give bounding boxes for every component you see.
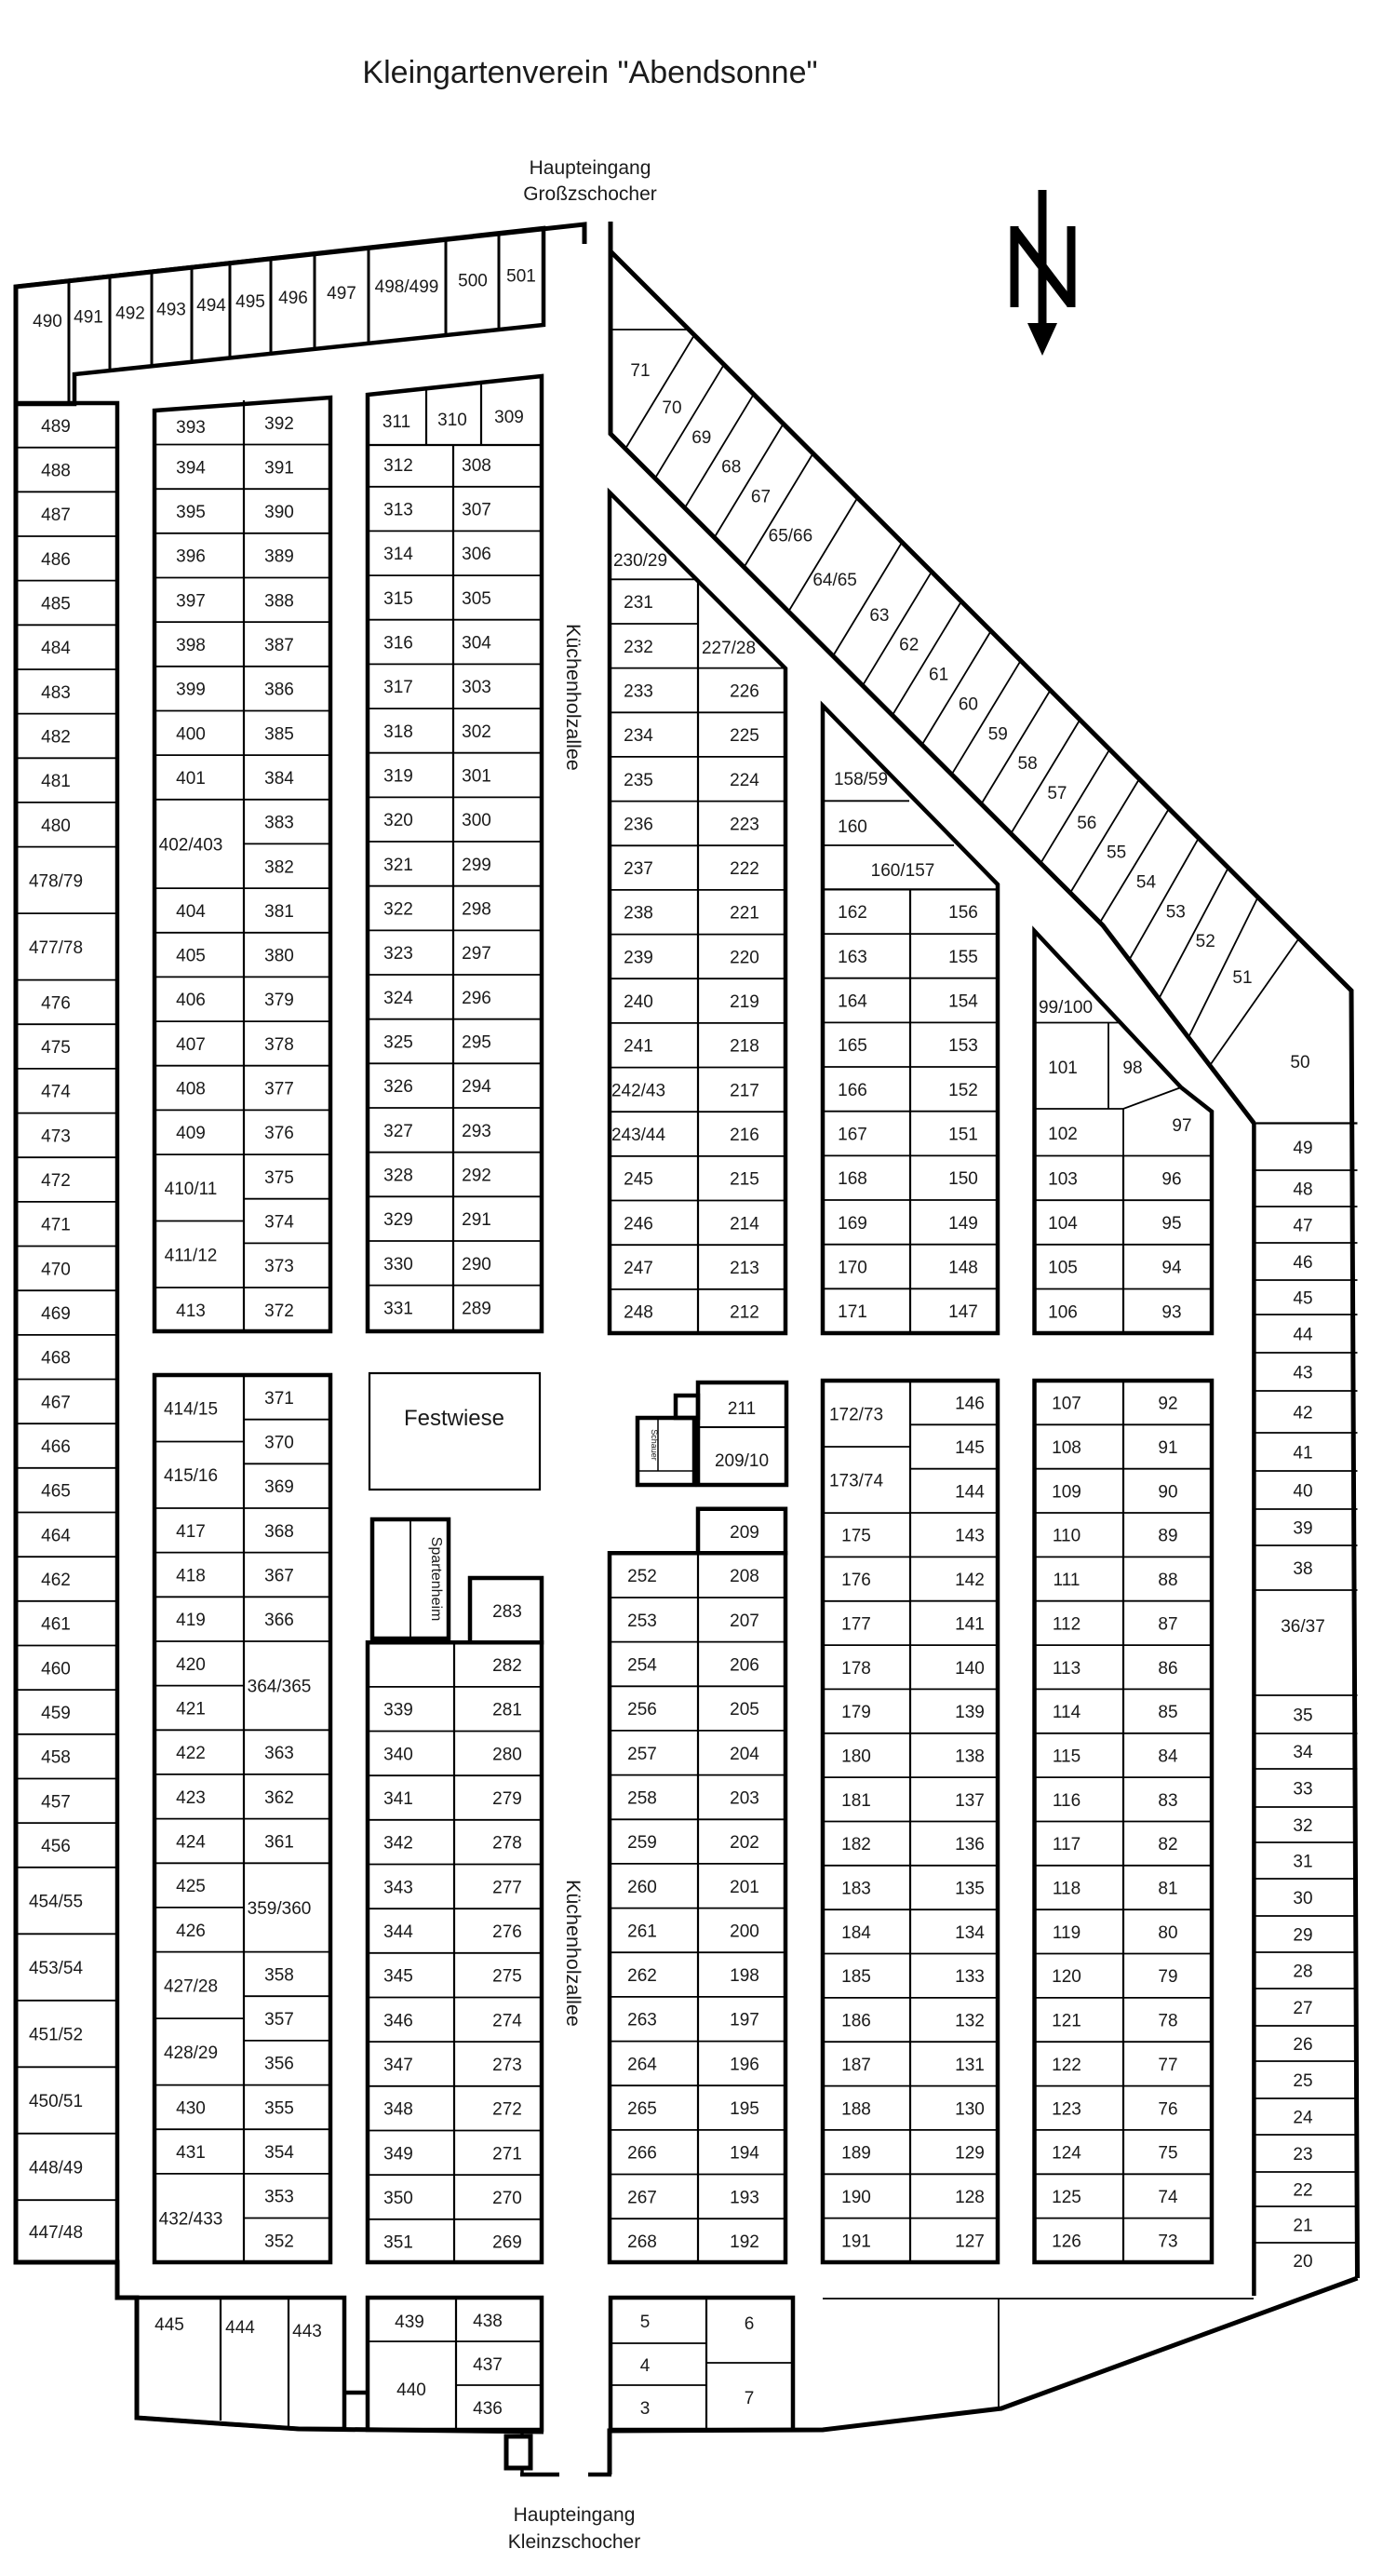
- svg-text:196: 196: [730, 2055, 759, 2074]
- svg-text:398: 398: [176, 636, 206, 655]
- svg-text:497: 497: [327, 284, 356, 303]
- svg-text:385: 385: [264, 724, 294, 744]
- svg-text:31: 31: [1293, 1853, 1312, 1872]
- svg-text:111: 111: [1054, 1571, 1081, 1590]
- svg-text:107: 107: [1052, 1395, 1081, 1414]
- svg-text:427/28: 427/28: [164, 1976, 218, 1996]
- svg-text:114: 114: [1053, 1703, 1081, 1722]
- svg-text:387: 387: [264, 636, 294, 655]
- svg-text:355: 355: [264, 2098, 294, 2118]
- svg-text:418: 418: [176, 1567, 206, 1586]
- svg-text:28: 28: [1293, 1962, 1312, 1982]
- svg-text:97: 97: [1172, 1116, 1191, 1136]
- svg-text:247: 247: [624, 1259, 653, 1278]
- svg-text:421: 421: [176, 1700, 206, 1720]
- svg-text:136: 136: [955, 1835, 985, 1854]
- svg-text:155: 155: [948, 948, 978, 967]
- svg-text:194: 194: [730, 2144, 759, 2164]
- svg-text:153: 153: [948, 1036, 978, 1056]
- svg-text:296: 296: [462, 989, 491, 1008]
- svg-text:314: 314: [383, 545, 413, 564]
- svg-text:41: 41: [1293, 1444, 1312, 1463]
- svg-text:132: 132: [955, 2012, 985, 2031]
- svg-text:58: 58: [1018, 754, 1038, 774]
- svg-text:38: 38: [1293, 1559, 1312, 1579]
- svg-text:475: 475: [41, 1038, 71, 1058]
- svg-text:168: 168: [838, 1169, 867, 1189]
- svg-text:319: 319: [383, 767, 413, 787]
- svg-text:195: 195: [730, 2099, 759, 2119]
- svg-text:177: 177: [841, 1614, 871, 1634]
- svg-text:448/49: 448/49: [29, 2159, 83, 2178]
- svg-text:347: 347: [383, 2056, 413, 2075]
- svg-text:151: 151: [948, 1126, 978, 1145]
- svg-text:104: 104: [1048, 1214, 1078, 1234]
- svg-text:272: 272: [492, 2100, 522, 2120]
- svg-text:317: 317: [383, 678, 413, 697]
- svg-text:191: 191: [841, 2232, 871, 2251]
- svg-text:468: 468: [41, 1349, 71, 1369]
- svg-text:211: 211: [728, 1399, 756, 1419]
- svg-text:469: 469: [41, 1304, 71, 1324]
- svg-text:237: 237: [624, 859, 653, 879]
- svg-text:Küchenholzallee: Küchenholzallee: [562, 1880, 584, 2027]
- svg-text:89: 89: [1158, 1527, 1177, 1546]
- svg-text:436: 436: [473, 2399, 503, 2419]
- svg-text:440: 440: [396, 2380, 426, 2400]
- svg-text:430: 430: [176, 2098, 206, 2118]
- svg-text:46: 46: [1293, 1253, 1312, 1273]
- svg-text:362: 362: [264, 1788, 294, 1808]
- svg-text:164: 164: [838, 992, 867, 1012]
- svg-text:Haupteingang: Haupteingang: [514, 2504, 636, 2526]
- svg-text:447/48: 447/48: [29, 2223, 83, 2243]
- svg-text:Schauer: Schauer: [650, 1429, 659, 1461]
- svg-text:290: 290: [462, 1255, 491, 1275]
- svg-text:498/499: 498/499: [375, 277, 439, 297]
- svg-text:20: 20: [1293, 2252, 1312, 2272]
- svg-text:7: 7: [745, 2389, 755, 2408]
- svg-text:464: 464: [41, 1526, 71, 1545]
- svg-text:220: 220: [730, 948, 759, 967]
- svg-text:473: 473: [41, 1126, 71, 1146]
- svg-text:123: 123: [1052, 2099, 1081, 2119]
- svg-text:500: 500: [458, 272, 488, 291]
- svg-text:467: 467: [41, 1393, 71, 1412]
- svg-text:259: 259: [627, 1833, 657, 1853]
- svg-text:368: 368: [264, 1522, 294, 1542]
- svg-text:118: 118: [1053, 1880, 1081, 1899]
- svg-text:223: 223: [730, 815, 759, 834]
- svg-text:180: 180: [841, 1747, 871, 1767]
- svg-text:96: 96: [1161, 1169, 1181, 1189]
- svg-text:307: 307: [462, 501, 491, 520]
- svg-text:148: 148: [948, 1259, 978, 1278]
- svg-text:459: 459: [41, 1704, 71, 1723]
- svg-text:209/10: 209/10: [715, 1451, 769, 1471]
- svg-text:84: 84: [1158, 1747, 1178, 1767]
- svg-text:74: 74: [1158, 2188, 1178, 2207]
- svg-text:142: 142: [955, 1571, 985, 1590]
- svg-text:79: 79: [1158, 1967, 1177, 1987]
- svg-text:87: 87: [1158, 1614, 1177, 1634]
- svg-text:409: 409: [176, 1124, 206, 1143]
- svg-text:348: 348: [383, 2100, 413, 2120]
- svg-text:325: 325: [383, 1033, 413, 1053]
- svg-text:109: 109: [1052, 1482, 1081, 1502]
- svg-text:22: 22: [1293, 2181, 1312, 2201]
- svg-text:207: 207: [730, 1612, 759, 1631]
- svg-text:438: 438: [473, 2312, 503, 2331]
- svg-text:150: 150: [948, 1169, 978, 1189]
- svg-text:76: 76: [1158, 2099, 1177, 2119]
- svg-text:456: 456: [41, 1837, 71, 1856]
- svg-text:116: 116: [1053, 1791, 1081, 1811]
- svg-text:57: 57: [1047, 784, 1067, 803]
- svg-text:184: 184: [841, 1923, 871, 1943]
- svg-text:39: 39: [1293, 1519, 1312, 1539]
- svg-text:213: 213: [730, 1259, 759, 1278]
- svg-text:265: 265: [627, 2099, 657, 2119]
- svg-text:125: 125: [1052, 2188, 1081, 2207]
- svg-text:24: 24: [1293, 2109, 1313, 2128]
- svg-text:351: 351: [383, 2233, 413, 2253]
- svg-text:5: 5: [640, 2313, 651, 2332]
- svg-text:147: 147: [948, 1302, 978, 1322]
- svg-text:234: 234: [624, 726, 653, 746]
- svg-text:122: 122: [1052, 2056, 1081, 2075]
- svg-text:261: 261: [627, 1922, 657, 1941]
- svg-text:254: 254: [627, 1656, 657, 1676]
- svg-text:50: 50: [1290, 1053, 1309, 1072]
- svg-text:144: 144: [955, 1482, 985, 1502]
- svg-text:77: 77: [1158, 2056, 1177, 2075]
- svg-text:190: 190: [841, 2188, 871, 2207]
- svg-text:501: 501: [506, 267, 536, 287]
- svg-text:359/360: 359/360: [248, 1899, 312, 1919]
- svg-text:90: 90: [1158, 1482, 1177, 1502]
- svg-text:70: 70: [662, 398, 681, 418]
- svg-text:23: 23: [1293, 2145, 1312, 2165]
- svg-text:413: 413: [176, 1301, 206, 1321]
- svg-text:51: 51: [1232, 968, 1252, 988]
- svg-text:120: 120: [1052, 1967, 1081, 1987]
- svg-text:143: 143: [955, 1527, 985, 1546]
- svg-text:344: 344: [383, 1922, 413, 1942]
- svg-text:34: 34: [1293, 1743, 1313, 1762]
- svg-text:282: 282: [492, 1656, 522, 1676]
- svg-text:419: 419: [176, 1611, 206, 1630]
- svg-text:291: 291: [462, 1210, 491, 1230]
- svg-text:Küchenholzallee: Küchenholzallee: [562, 624, 584, 771]
- svg-text:86: 86: [1158, 1659, 1177, 1679]
- svg-text:466: 466: [41, 1437, 71, 1457]
- svg-text:482: 482: [41, 727, 71, 747]
- svg-text:221: 221: [730, 904, 759, 924]
- svg-text:488: 488: [41, 462, 71, 481]
- svg-text:197: 197: [730, 2011, 759, 2030]
- svg-text:99/100: 99/100: [1039, 998, 1093, 1018]
- svg-text:188: 188: [841, 2099, 871, 2119]
- svg-text:212: 212: [730, 1303, 759, 1323]
- svg-text:353: 353: [264, 2188, 294, 2207]
- svg-text:43: 43: [1293, 1364, 1312, 1383]
- svg-text:36/37: 36/37: [1281, 1617, 1325, 1637]
- svg-text:26: 26: [1293, 2035, 1312, 2055]
- svg-text:226: 226: [730, 681, 759, 701]
- svg-text:322: 322: [383, 900, 413, 920]
- svg-text:356: 356: [264, 2055, 294, 2074]
- svg-text:369: 369: [264, 1477, 294, 1497]
- svg-text:183: 183: [841, 1880, 871, 1899]
- svg-text:324: 324: [383, 989, 413, 1008]
- svg-text:417: 417: [176, 1522, 206, 1542]
- svg-text:101: 101: [1048, 1059, 1078, 1078]
- svg-text:457: 457: [41, 1792, 71, 1812]
- svg-text:110: 110: [1053, 1527, 1081, 1546]
- svg-text:154: 154: [948, 992, 978, 1012]
- svg-text:486: 486: [41, 550, 71, 570]
- svg-text:117: 117: [1053, 1835, 1081, 1854]
- svg-text:397: 397: [176, 591, 206, 611]
- svg-text:411/12: 411/12: [165, 1246, 218, 1265]
- svg-text:443: 443: [292, 2322, 322, 2341]
- svg-text:60: 60: [959, 695, 978, 714]
- svg-text:483: 483: [41, 683, 71, 703]
- svg-text:126: 126: [1052, 2232, 1081, 2251]
- svg-text:Festwiese: Festwiese: [404, 1406, 504, 1431]
- svg-text:495: 495: [235, 292, 265, 312]
- svg-text:Großzschocher: Großzschocher: [523, 183, 657, 205]
- svg-text:262: 262: [627, 1966, 657, 1986]
- svg-text:201: 201: [730, 1878, 759, 1897]
- svg-text:149: 149: [948, 1214, 978, 1234]
- svg-text:364/365: 364/365: [248, 1678, 312, 1697]
- svg-text:252: 252: [627, 1567, 657, 1586]
- svg-text:133: 133: [955, 1967, 985, 1987]
- svg-text:292: 292: [462, 1167, 491, 1186]
- svg-text:281: 281: [492, 1701, 522, 1720]
- svg-text:215: 215: [730, 1170, 759, 1190]
- svg-text:129: 129: [955, 2144, 985, 2164]
- svg-text:470: 470: [41, 1260, 71, 1279]
- svg-text:49: 49: [1293, 1139, 1312, 1158]
- svg-text:98: 98: [1122, 1059, 1142, 1078]
- svg-text:63: 63: [869, 606, 889, 626]
- svg-text:239: 239: [624, 948, 653, 967]
- svg-text:203: 203: [730, 1788, 759, 1808]
- svg-text:189: 189: [841, 2144, 871, 2164]
- svg-text:376: 376: [264, 1124, 294, 1143]
- svg-text:405: 405: [176, 947, 206, 966]
- svg-text:Spartenheim: Spartenheim: [428, 1537, 444, 1622]
- svg-text:432/433: 432/433: [159, 2210, 223, 2230]
- svg-text:485: 485: [41, 595, 71, 614]
- svg-text:327: 327: [383, 1122, 413, 1141]
- svg-text:93: 93: [1161, 1302, 1181, 1322]
- svg-text:243/44: 243/44: [611, 1126, 666, 1145]
- svg-text:141: 141: [955, 1614, 985, 1634]
- svg-text:35: 35: [1293, 1706, 1312, 1726]
- svg-text:465: 465: [41, 1482, 71, 1502]
- svg-text:304: 304: [462, 634, 491, 654]
- svg-text:384: 384: [264, 769, 294, 789]
- svg-text:389: 389: [264, 547, 294, 567]
- svg-text:343: 343: [383, 1878, 413, 1897]
- svg-text:158/59: 158/59: [834, 770, 888, 789]
- svg-text:453/54: 453/54: [29, 1959, 84, 1978]
- svg-text:248: 248: [624, 1303, 653, 1323]
- svg-text:64/65: 64/65: [812, 571, 857, 590]
- svg-text:182: 182: [841, 1835, 871, 1854]
- svg-text:374: 374: [264, 1213, 294, 1233]
- svg-text:270: 270: [492, 2189, 522, 2208]
- svg-text:258: 258: [627, 1788, 657, 1808]
- svg-text:298: 298: [462, 900, 491, 920]
- svg-text:169: 169: [838, 1214, 867, 1234]
- svg-text:313: 313: [383, 501, 413, 520]
- svg-text:61: 61: [929, 666, 948, 685]
- svg-text:115: 115: [1053, 1747, 1081, 1767]
- svg-text:222: 222: [730, 859, 759, 879]
- svg-text:392: 392: [264, 414, 294, 434]
- svg-text:367: 367: [264, 1567, 294, 1586]
- svg-text:81: 81: [1158, 1880, 1177, 1899]
- svg-text:490: 490: [33, 312, 62, 331]
- svg-text:305: 305: [462, 589, 491, 609]
- svg-text:366: 366: [264, 1611, 294, 1630]
- svg-text:487: 487: [41, 506, 71, 525]
- svg-text:280: 280: [492, 1745, 522, 1764]
- svg-text:357: 357: [264, 2010, 294, 2030]
- svg-text:214: 214: [730, 1214, 759, 1234]
- svg-text:480: 480: [41, 816, 71, 836]
- svg-text:406: 406: [176, 991, 206, 1010]
- svg-text:71: 71: [630, 361, 650, 381]
- svg-text:283: 283: [492, 1602, 522, 1622]
- svg-text:88: 88: [1158, 1571, 1177, 1590]
- svg-text:160: 160: [838, 817, 867, 837]
- svg-text:386: 386: [264, 681, 294, 700]
- svg-text:268: 268: [627, 2232, 657, 2252]
- svg-text:267: 267: [627, 2188, 657, 2207]
- svg-text:271: 271: [492, 2144, 522, 2164]
- svg-text:162: 162: [838, 903, 867, 923]
- svg-text:395: 395: [176, 503, 206, 522]
- svg-text:257: 257: [627, 1745, 657, 1764]
- svg-text:439: 439: [395, 2313, 424, 2332]
- svg-text:68: 68: [721, 458, 741, 478]
- svg-text:437: 437: [473, 2355, 503, 2375]
- svg-text:289: 289: [462, 1300, 491, 1319]
- svg-text:484: 484: [41, 639, 71, 658]
- svg-text:328: 328: [383, 1167, 413, 1186]
- svg-text:128: 128: [955, 2188, 985, 2207]
- svg-text:62: 62: [899, 636, 919, 655]
- svg-text:293: 293: [462, 1122, 491, 1141]
- svg-text:134: 134: [955, 1923, 985, 1943]
- svg-text:185: 185: [841, 1967, 871, 1987]
- svg-text:95: 95: [1161, 1214, 1181, 1234]
- svg-text:173/74: 173/74: [829, 1472, 884, 1491]
- svg-text:493: 493: [156, 300, 186, 319]
- svg-text:40: 40: [1293, 1482, 1312, 1502]
- svg-text:112: 112: [1053, 1614, 1081, 1634]
- svg-text:242/43: 242/43: [611, 1081, 665, 1100]
- svg-text:377: 377: [264, 1080, 294, 1099]
- svg-text:119: 119: [1053, 1923, 1081, 1943]
- svg-text:170: 170: [838, 1259, 867, 1278]
- svg-text:27: 27: [1293, 1999, 1312, 2018]
- svg-text:269: 269: [492, 2233, 522, 2253]
- svg-text:73: 73: [1158, 2232, 1177, 2251]
- svg-text:331: 331: [383, 1300, 413, 1319]
- svg-text:103: 103: [1048, 1169, 1078, 1189]
- svg-text:274: 274: [492, 2011, 522, 2030]
- svg-text:146: 146: [955, 1395, 985, 1414]
- svg-text:163: 163: [838, 948, 867, 967]
- svg-text:130: 130: [955, 2099, 985, 2119]
- svg-text:477/78: 477/78: [29, 938, 83, 958]
- svg-text:230/29: 230/29: [613, 551, 667, 571]
- svg-text:424: 424: [176, 1832, 206, 1852]
- svg-text:445: 445: [154, 2315, 184, 2335]
- svg-text:372: 372: [264, 1301, 294, 1321]
- svg-text:426: 426: [176, 1922, 206, 1941]
- svg-text:131: 131: [955, 2056, 985, 2075]
- svg-text:47: 47: [1293, 1217, 1312, 1236]
- svg-text:198: 198: [730, 1966, 759, 1986]
- svg-text:179: 179: [841, 1703, 871, 1722]
- svg-text:323: 323: [383, 944, 413, 964]
- svg-text:454/55: 454/55: [29, 1893, 83, 1912]
- svg-text:Kleinzschocher: Kleinzschocher: [508, 2531, 640, 2553]
- svg-text:349: 349: [383, 2144, 413, 2164]
- svg-text:140: 140: [955, 1659, 985, 1679]
- svg-text:341: 341: [383, 1789, 413, 1809]
- svg-text:240: 240: [624, 992, 653, 1012]
- svg-text:165: 165: [838, 1036, 867, 1056]
- svg-text:121: 121: [1052, 2012, 1081, 2031]
- svg-text:326: 326: [383, 1077, 413, 1097]
- svg-text:217: 217: [730, 1081, 759, 1100]
- svg-text:238: 238: [624, 904, 653, 924]
- svg-text:241: 241: [624, 1037, 653, 1057]
- svg-text:460: 460: [41, 1659, 71, 1679]
- svg-text:32: 32: [1293, 1816, 1312, 1836]
- svg-text:309: 309: [494, 408, 524, 427]
- svg-text:181: 181: [841, 1791, 871, 1811]
- svg-text:Haupteingang: Haupteingang: [530, 157, 651, 179]
- svg-text:450/51: 450/51: [29, 2092, 83, 2111]
- svg-text:202: 202: [730, 1833, 759, 1853]
- svg-text:316: 316: [383, 634, 413, 654]
- svg-text:127: 127: [955, 2232, 985, 2251]
- svg-text:394: 394: [176, 458, 206, 478]
- svg-text:414/15: 414/15: [164, 1400, 218, 1420]
- svg-text:415/16: 415/16: [164, 1466, 218, 1486]
- svg-text:56: 56: [1077, 814, 1096, 833]
- svg-text:92: 92: [1158, 1395, 1177, 1414]
- svg-text:206: 206: [730, 1656, 759, 1676]
- svg-text:218: 218: [730, 1037, 759, 1057]
- svg-text:423: 423: [176, 1788, 206, 1808]
- svg-text:492: 492: [115, 303, 145, 323]
- svg-text:278: 278: [492, 1834, 522, 1854]
- svg-text:176: 176: [841, 1571, 871, 1590]
- svg-text:139: 139: [955, 1703, 985, 1722]
- svg-text:410/11: 410/11: [165, 1180, 218, 1199]
